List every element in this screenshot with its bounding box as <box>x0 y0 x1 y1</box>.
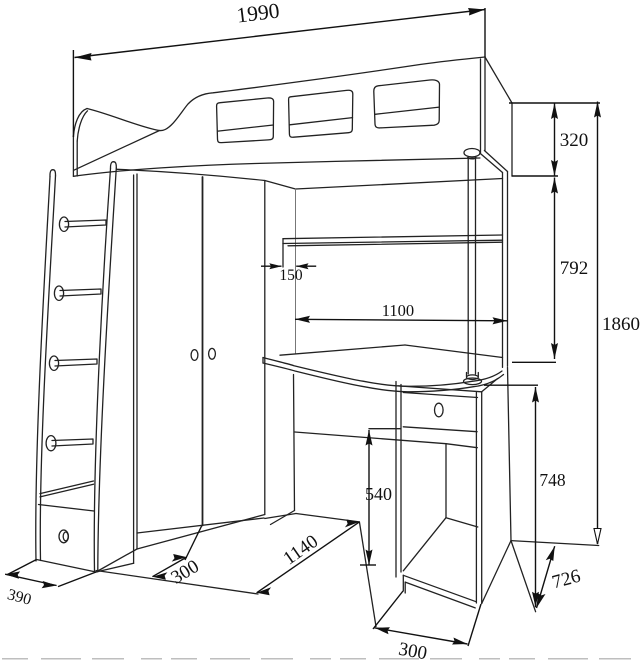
svg-text:792: 792 <box>560 258 589 279</box>
svg-text:540: 540 <box>365 484 392 504</box>
svg-text:320: 320 <box>560 130 589 151</box>
svg-text:150: 150 <box>279 267 303 284</box>
svg-text:300: 300 <box>397 639 429 660</box>
svg-text:748: 748 <box>539 470 566 490</box>
svg-text:1860: 1860 <box>602 314 640 335</box>
svg-text:1100: 1100 <box>382 301 414 320</box>
